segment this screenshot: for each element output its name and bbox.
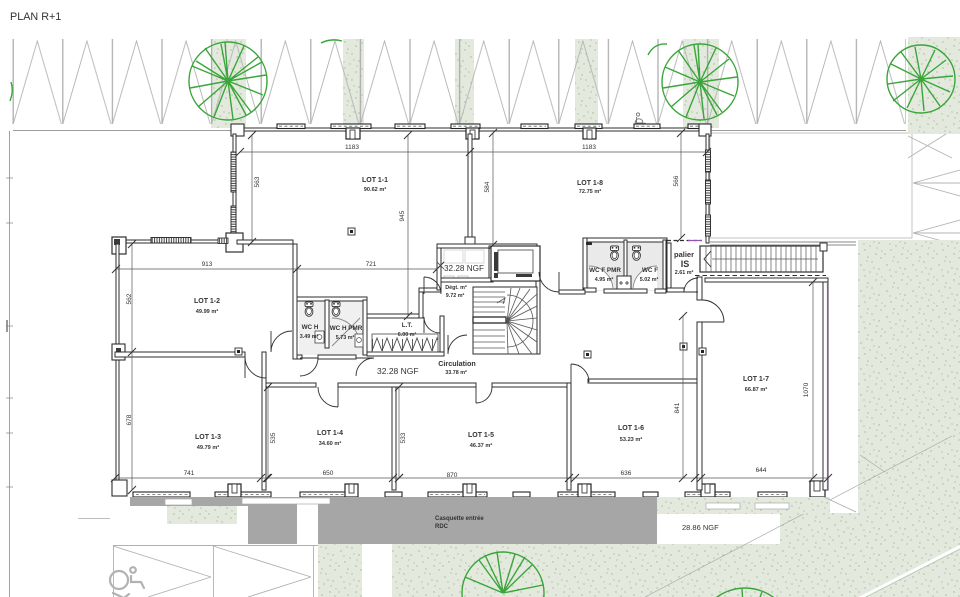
- svg-text:870: 870: [447, 472, 458, 479]
- svg-text:32.28 NGF: 32.28 NGF: [377, 366, 419, 376]
- svg-text:636: 636: [621, 470, 632, 477]
- svg-text:WC F PMR: WC F PMR: [589, 267, 621, 274]
- svg-text:LOT 1-1: LOT 1-1: [362, 177, 388, 184]
- svg-text:841: 841: [674, 402, 681, 413]
- svg-text:LOT 1-8: LOT 1-8: [577, 180, 603, 187]
- svg-text:WC F: WC F: [642, 267, 658, 274]
- svg-text:650: 650: [323, 470, 334, 477]
- svg-text:46.37 m²: 46.37 m²: [470, 442, 493, 449]
- svg-text:RDC: RDC: [435, 524, 449, 530]
- svg-text:9.72 m²: 9.72 m²: [446, 293, 465, 299]
- svg-text:WC H: WC H: [302, 324, 319, 331]
- svg-text:6.00 m²: 6.00 m²: [398, 332, 417, 338]
- svg-text:566: 566: [673, 175, 680, 186]
- svg-text:LOT 1-2: LOT 1-2: [194, 298, 220, 305]
- svg-text:LOT 1-6: LOT 1-6: [618, 425, 644, 432]
- svg-text:IS: IS: [681, 259, 690, 269]
- svg-text:LOT 1-5: LOT 1-5: [468, 432, 494, 439]
- svg-text:PLAN R+1: PLAN R+1: [10, 11, 61, 23]
- svg-text:LOT 1-7: LOT 1-7: [743, 376, 769, 383]
- svg-text:66.87 m²: 66.87 m²: [745, 386, 768, 393]
- svg-text:53.23 m²: 53.23 m²: [620, 436, 643, 443]
- svg-text:Circulation: Circulation: [438, 359, 476, 368]
- svg-text:678: 678: [126, 414, 133, 425]
- svg-text:Casquette entrée: Casquette entrée: [435, 516, 484, 522]
- svg-text:Dégt. m²: Dégt. m²: [445, 285, 467, 291]
- svg-text:34.60 m²: 34.60 m²: [319, 440, 342, 447]
- svg-text:28.86 NGF: 28.86 NGF: [682, 523, 719, 532]
- svg-text:LOT 1-4: LOT 1-4: [317, 430, 343, 437]
- svg-text:32.28 NGF: 32.28 NGF: [444, 264, 484, 273]
- svg-text:562: 562: [126, 293, 133, 304]
- svg-text:644: 644: [756, 467, 767, 474]
- svg-text:2.61 m²: 2.61 m²: [675, 270, 694, 276]
- svg-text:535: 535: [270, 432, 277, 443]
- svg-text:1183: 1183: [345, 144, 359, 151]
- svg-text:L.T.: L.T.: [402, 322, 413, 329]
- svg-text:5.02 m²: 5.02 m²: [640, 277, 659, 283]
- svg-text:721: 721: [366, 261, 377, 268]
- svg-text:913: 913: [202, 261, 213, 268]
- svg-text:LOT 1-3: LOT 1-3: [195, 434, 221, 441]
- svg-text:1183: 1183: [582, 144, 596, 151]
- svg-text:1070: 1070: [803, 382, 810, 397]
- svg-text:563: 563: [254, 176, 261, 187]
- svg-text:584: 584: [484, 181, 491, 192]
- svg-text:5.73 m²: 5.73 m²: [336, 335, 355, 341]
- svg-text:90.62 m²: 90.62 m²: [364, 186, 387, 193]
- svg-text:3.49 m²: 3.49 m²: [300, 334, 319, 340]
- svg-text:741: 741: [184, 470, 195, 477]
- svg-text:4.95 m²: 4.95 m²: [595, 277, 614, 283]
- svg-text:33.78 m²: 33.78 m²: [445, 370, 467, 376]
- svg-text:49.99 m²: 49.99 m²: [196, 308, 219, 315]
- svg-text:72.75 m²: 72.75 m²: [579, 188, 602, 195]
- svg-text:WC H PMR: WC H PMR: [330, 325, 363, 332]
- svg-text:49.79 m²: 49.79 m²: [197, 444, 220, 451]
- svg-text:533: 533: [400, 432, 407, 443]
- svg-text:palier: palier: [674, 250, 694, 259]
- svg-text:945: 945: [399, 210, 406, 221]
